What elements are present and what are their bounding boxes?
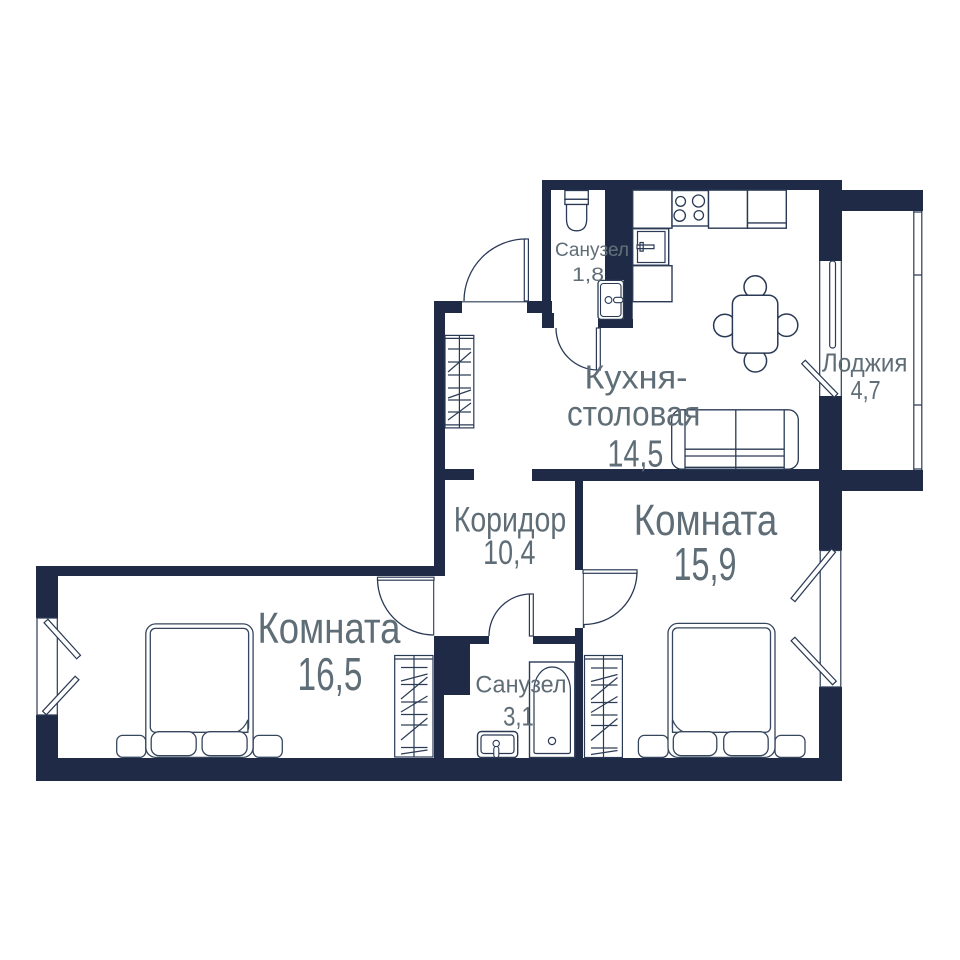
svg-text:4,7: 4,7 <box>851 375 881 405</box>
svg-text:Санузел: Санузел <box>475 672 566 699</box>
svg-text:1,8: 1,8 <box>572 265 604 286</box>
svg-text:столовая: столовая <box>567 395 701 434</box>
svg-text:16,5: 16,5 <box>298 648 363 700</box>
svg-text:15,9: 15,9 <box>674 538 737 590</box>
svg-text:10,4: 10,4 <box>483 534 535 572</box>
svg-text:Кухня-: Кухня- <box>585 358 688 395</box>
svg-text:Лоджия: Лоджия <box>822 347 908 377</box>
svg-text:Комната: Комната <box>258 604 401 653</box>
svg-text:3,1: 3,1 <box>503 702 534 732</box>
svg-text:14,5: 14,5 <box>608 434 664 476</box>
